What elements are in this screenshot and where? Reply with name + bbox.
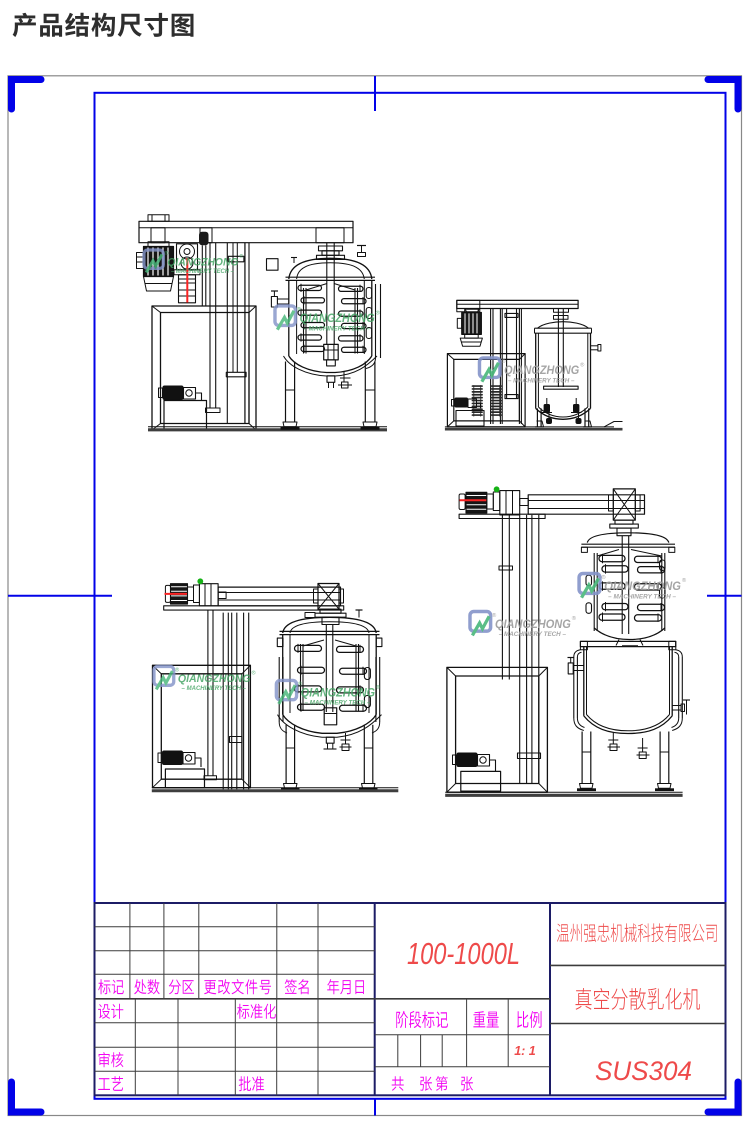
svg-text:– MACHINERY TECH –: – MACHINERY TECH –: [305, 700, 371, 707]
svg-text:®: ®: [251, 670, 255, 677]
svg-text:– MACHINERY TECH –: – MACHINERY TECH –: [171, 268, 235, 275]
svg-text:– MACHINERY TECH –: – MACHINERY TECH –: [499, 631, 567, 638]
svg-text:®: ®: [239, 253, 243, 260]
svg-text:– MACHINERY TECH –: – MACHINERY TECH –: [608, 594, 676, 601]
svg-text:100-1000L: 100-1000L: [407, 936, 520, 971]
svg-text:– MACHINERY TECH –: – MACHINERY TECH –: [303, 325, 370, 332]
svg-text:QIANGZHONG: QIANGZHONG: [495, 617, 571, 631]
svg-text:SUS304: SUS304: [595, 1056, 692, 1086]
svg-text:QIANGZHONG: QIANGZHONG: [301, 686, 375, 699]
svg-text:QIANGZHONG: QIANGZHONG: [300, 312, 375, 325]
svg-text:QIANGZHONG: QIANGZHONG: [504, 364, 579, 377]
svg-text:1: 1: 1: 1: [514, 1044, 536, 1058]
svg-text:– MACHINERY TECH –: – MACHINERY TECH –: [508, 377, 575, 384]
svg-text:®: ®: [682, 577, 687, 584]
svg-text:QIANGZHONG: QIANGZHONG: [178, 673, 251, 685]
svg-text:®: ®: [572, 615, 577, 622]
svg-text:– MACHINERY TECH –: – MACHINERY TECH –: [182, 685, 247, 692]
svg-text:QIANGZHONG: QIANGZHONG: [604, 579, 681, 593]
svg-text:QIANGZHONG: QIANGZHONG: [167, 256, 238, 268]
